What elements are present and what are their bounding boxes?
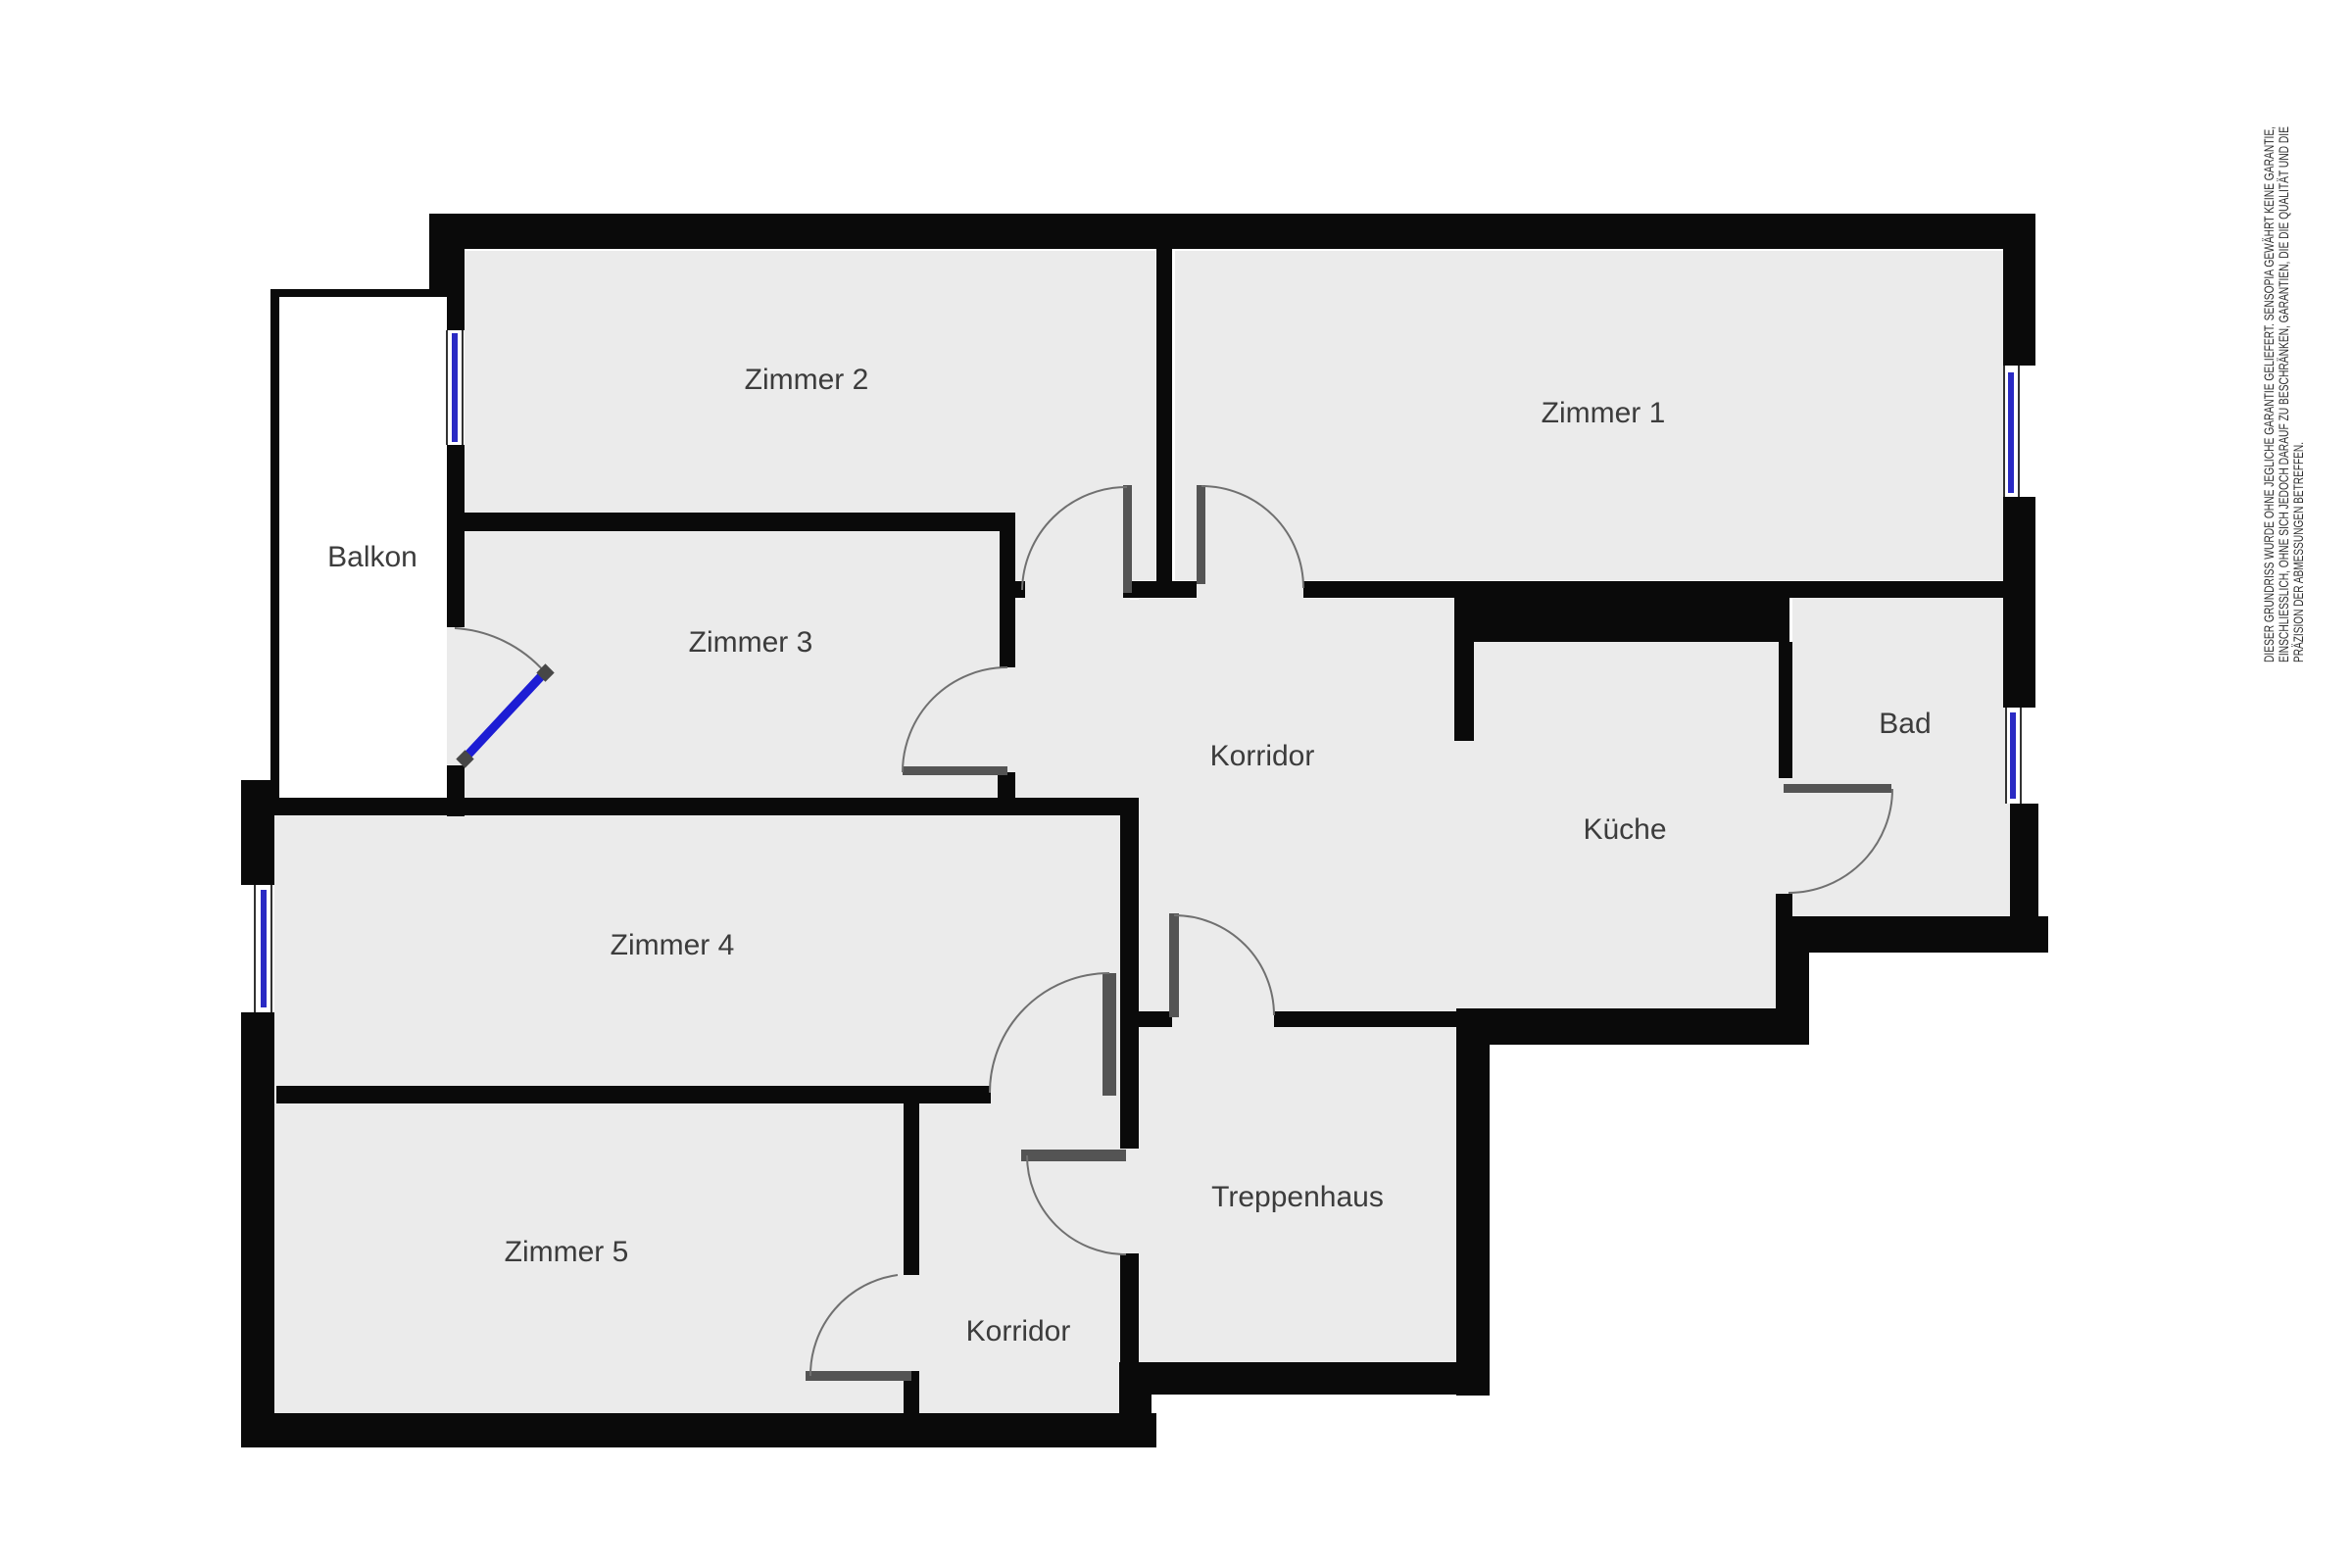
svg-text:Küche: Küche: [1583, 813, 1666, 846]
svg-text:Korridor: Korridor: [1210, 740, 1315, 772]
svg-text:Korridor: Korridor: [966, 1315, 1071, 1347]
svg-text:Treppenhaus: Treppenhaus: [1211, 1181, 1384, 1213]
svg-text:EINSCHLIESSLICH, OHNE SICH JED: EINSCHLIESSLICH, OHNE SICH JEDOCH DARAUF…: [2277, 126, 2291, 662]
svg-text:Zimmer 1: Zimmer 1: [1542, 397, 1666, 429]
svg-text:Bad: Bad: [1879, 708, 1931, 740]
svg-text:PRÄZISION DER ABMESSUNGEN BETR: PRÄZISION DER ABMESSUNGEN BETREFFEN.: [2291, 442, 2306, 662]
svg-text:Balkon: Balkon: [327, 541, 417, 573]
svg-text:Zimmer 2: Zimmer 2: [745, 364, 869, 396]
svg-text:Zimmer 5: Zimmer 5: [505, 1236, 629, 1268]
svg-text:DIESER GRUNDRISS WURDE OHNE JE: DIESER GRUNDRISS WURDE OHNE JEGLICHE GAR…: [2262, 126, 2277, 662]
svg-text:Zimmer 3: Zimmer 3: [689, 626, 813, 659]
svg-text:Zimmer 4: Zimmer 4: [611, 929, 735, 961]
